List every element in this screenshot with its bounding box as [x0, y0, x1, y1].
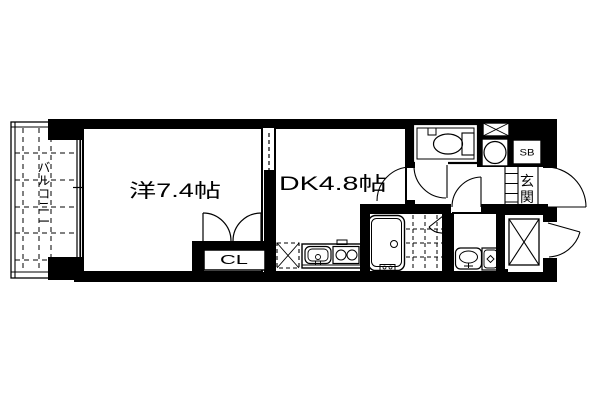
wall-washroom-left — [443, 213, 453, 272]
genkan-step-ticks — [505, 174, 518, 203]
balcony-label-char3: コ — [38, 187, 51, 201]
toilet-door-opening — [415, 160, 448, 166]
washroom — [452, 177, 499, 272]
genkan-label: 玄 関 — [520, 173, 534, 205]
floor-plan: バ ル コ ニ ー 洋7.4帖 CL DK4.8帖 — [0, 0, 600, 400]
wall-closet-front — [192, 241, 275, 250]
service-door — [548, 223, 580, 257]
service-door-arc — [549, 232, 580, 257]
entrance-door — [546, 167, 586, 207]
water-heater-box — [482, 139, 508, 166]
washroom-outline — [453, 213, 497, 272]
toilet-room — [413, 124, 478, 198]
entrance-door-arc — [546, 167, 586, 207]
wall-right-lower — [543, 258, 557, 282]
pipe-shaft — [505, 215, 543, 269]
wall-right-upper — [543, 119, 557, 168]
toilet-room-outline — [413, 124, 478, 163]
balcony-label-char5: ー — [38, 215, 51, 229]
wall-shaft-top — [497, 204, 548, 215]
closet-label: CL — [220, 252, 248, 267]
western-room-label: 洋7.4帖 — [129, 180, 221, 202]
genkan-label-char1: 玄 — [520, 173, 534, 189]
dk-label: DK4.8帖 — [279, 173, 387, 195]
bathroom — [369, 213, 444, 272]
meter-box-icon — [483, 123, 509, 136]
wall-right-mid — [543, 207, 557, 222]
window-glass-lines — [77, 140, 81, 257]
balcony-label-char4: ニ — [38, 200, 51, 214]
floor-plan-page: バ ル コ ニ ー 洋7.4帖 CL DK4.8帖 — [0, 0, 600, 400]
balcony-label-char2: ル — [38, 174, 51, 188]
service-door-leaf — [548, 223, 580, 232]
wall-bathroom-left — [360, 204, 369, 282]
genkan-label-char2: 関 — [520, 189, 534, 205]
water-heater-icon — [482, 139, 508, 166]
wall-bottom — [74, 272, 557, 282]
toilet-door — [414, 165, 447, 198]
washroom-door-arc — [452, 177, 481, 207]
balcony-label-char1: バ — [38, 161, 51, 175]
toilet-door-arc — [414, 166, 446, 198]
shoe-box: SB — [513, 140, 541, 164]
wall-hall-bottom-a — [415, 204, 451, 213]
balcony-label: バ ル コ ニ ー — [38, 161, 51, 229]
washroom-door — [452, 177, 481, 207]
shoe-box-label: SB — [520, 148, 535, 159]
